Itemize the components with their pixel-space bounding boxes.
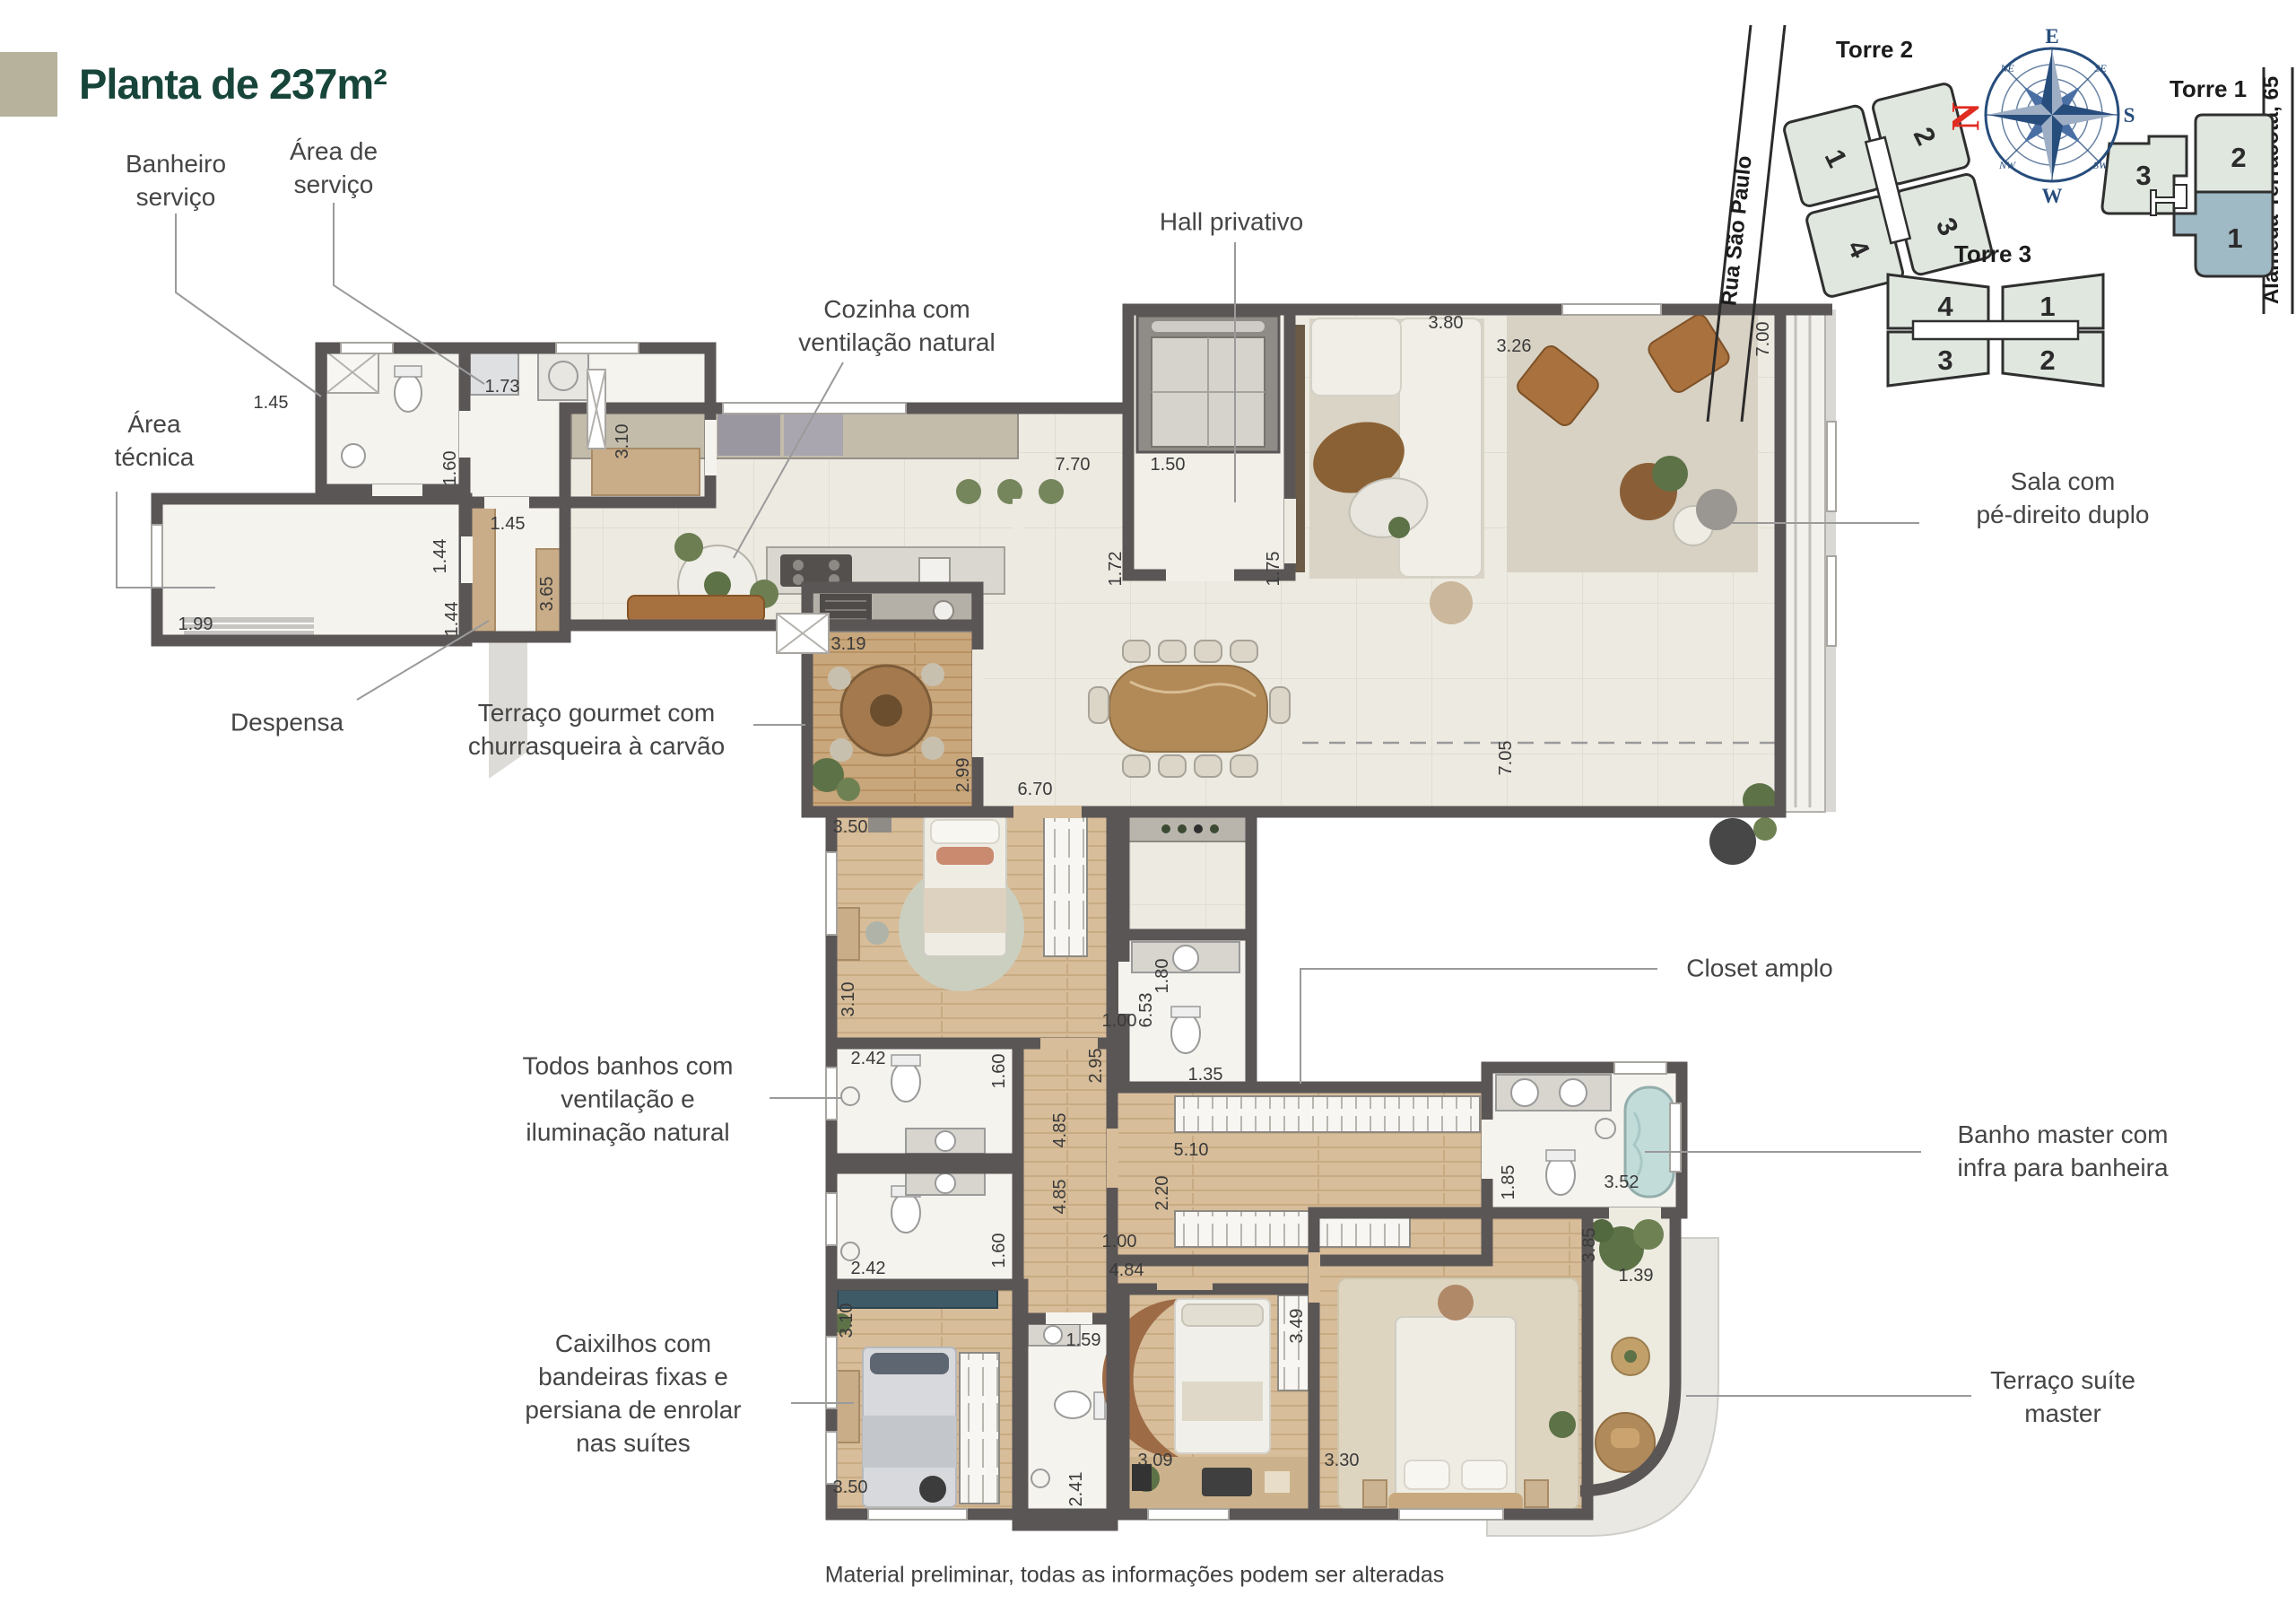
callout-banheiro-servico: Banheiro serviço [86, 148, 265, 214]
dim-label: 3.09 [1138, 1451, 1173, 1470]
sink-icon [935, 1173, 955, 1193]
dim-label: 3.26 [1497, 336, 1532, 356]
callout-area-servico: Área de serviço [253, 135, 414, 202]
dim-label: 2.95 [1086, 1049, 1106, 1084]
callout-caixilhos: Caixilhos com bandeiras fixas e persiana… [485, 1328, 781, 1460]
compass-sw: SW [2093, 159, 2109, 171]
pillow [1405, 1460, 1449, 1489]
dim-label: 1.60 [989, 1054, 1009, 1089]
dim-label: 3.85 [1579, 1228, 1599, 1263]
dim-label: 2.99 [953, 758, 973, 793]
floor-plan: 1.45 1.73 1.60 1.45 1.44 1.44 1.99 3.65 … [117, 203, 1971, 1536]
nightstand [1363, 1480, 1387, 1507]
sink-icon [1044, 1326, 1062, 1344]
sink-icon [1560, 1079, 1587, 1106]
washer-icon [538, 352, 588, 400]
torre1-footprint: 2 3 1 [2102, 115, 2273, 276]
master-bedroom-furniture [1338, 1278, 1578, 1512]
dim-label: 3.65 [537, 577, 557, 612]
callout-banho-master: Banho master com infra para banheira [1883, 1119, 2242, 1185]
nightstand [1525, 1480, 1548, 1507]
fridge-icon [784, 412, 843, 456]
torre3-label: Torre 3 [1954, 240, 2031, 267]
dim-label: 4.85 [1050, 1113, 1070, 1148]
plant-icon [1753, 817, 1777, 841]
nightstand [868, 816, 891, 833]
torre1-unit: 3 [2135, 160, 2151, 191]
compass-e: E [2045, 25, 2058, 48]
dim-label: 2.42 [851, 1049, 886, 1068]
compass-n: N [1944, 102, 1987, 131]
dim-label: 1.39 [1619, 1266, 1654, 1286]
plant-icon [837, 778, 860, 801]
plant-icon [1549, 1411, 1576, 1438]
toilet-icon [891, 1193, 920, 1233]
dim-label: 4.84 [1109, 1260, 1144, 1280]
callout-hall-privativo: Hall privativo [1106, 206, 1357, 240]
callout-closet: Closet amplo [1634, 953, 1885, 986]
callout-despensa: Despensa [188, 707, 386, 740]
toilet-icon [1055, 1391, 1091, 1418]
dim-label: 1.60 [989, 1234, 1009, 1268]
toilet-icon [395, 374, 422, 412]
callout-terraco-master: Terraço suíte master [1928, 1364, 2197, 1431]
callout-sala: Sala com pé-direito duplo [1910, 466, 2215, 532]
dim-label: 5.10 [1174, 1140, 1209, 1160]
dim-label: 2.20 [1152, 1176, 1172, 1211]
plant-icon [1652, 456, 1688, 492]
dim-label: 1.44 [430, 539, 450, 574]
dim-label: 3.50 [833, 817, 868, 837]
dim-label: 2.42 [851, 1259, 886, 1278]
dim-label: 1.72 [1106, 552, 1126, 587]
hall-elevator [1137, 316, 1279, 452]
pillow [1182, 1304, 1263, 1326]
plant-icon [1388, 517, 1410, 538]
torre1-unit: 2 [2231, 142, 2246, 173]
callout-terraco-gourmet: Terraço gourmet com churrasqueira à carv… [426, 697, 767, 763]
dim-label: 1.99 [178, 615, 213, 634]
wardrobe [1044, 816, 1087, 956]
oven-icon [717, 412, 780, 456]
dim-label: 1.45 [254, 393, 289, 413]
dim-label: 7.00 [1753, 322, 1773, 357]
torre3-unit: 3 [1937, 344, 1952, 376]
chair [865, 921, 889, 945]
dim-label: 3.80 [1429, 313, 1464, 333]
wardrobe [960, 1353, 999, 1504]
sofa-chaise [1311, 318, 1401, 396]
sink-icon [1511, 1079, 1538, 1106]
plant-icon [1633, 1219, 1664, 1250]
dim-label: 1.85 [1499, 1165, 1518, 1200]
dim-label: 7.70 [1056, 455, 1091, 475]
banquette-sofa [628, 596, 764, 623]
callout-banhos: Todos banhos com ventilação e iluminação… [484, 1050, 771, 1150]
dim-label: 3.10 [613, 424, 632, 459]
torre2-label: Torre 2 [1836, 36, 1913, 63]
dim-label: 3.52 [1605, 1172, 1639, 1192]
dim-label: 3.10 [839, 982, 858, 1017]
stool [1039, 479, 1064, 504]
kitchen-sink-icon [919, 558, 950, 583]
dim-label: 1.80 [1152, 959, 1172, 994]
compass-ne: NE [1999, 62, 2014, 74]
sofa [1399, 318, 1482, 577]
disclaimer: Material preliminar, todas as informaçõe… [825, 1563, 1445, 1589]
street-label-rua: Rua São Paulo [1717, 154, 1756, 307]
desk [836, 1371, 859, 1443]
sink-icon [342, 444, 365, 467]
torre1-unit: 1 [2227, 222, 2242, 254]
dim-label: 1.35 [1188, 1065, 1223, 1085]
torre1-label: Torre 1 [2170, 75, 2247, 102]
callout-cozinha: Cozinha com ventilação natural [753, 293, 1040, 360]
dim-label: 6.70 [1018, 780, 1053, 799]
dim-label: 1.50 [1151, 455, 1186, 475]
torre3-unit: 2 [2039, 344, 2055, 376]
torre3-footprint: 4 1 3 2 [1888, 275, 2103, 386]
stool [956, 479, 981, 504]
torre1-unit1-shape-highlighted [2174, 192, 2273, 276]
dim-label: 1.59 [1066, 1330, 1101, 1350]
notepad [1265, 1471, 1290, 1493]
leader-banheiro-servico [176, 214, 321, 397]
dim-label: 2.41 [1066, 1472, 1086, 1507]
laptop-icon [1202, 1468, 1252, 1496]
toilet-icon [1171, 1014, 1200, 1053]
pillow [1462, 1460, 1507, 1489]
dim-label: 1.45 [491, 514, 526, 534]
torre3-unit: 4 [1937, 291, 1953, 322]
dim-label: 4.85 [1050, 1180, 1070, 1215]
dim-label: 3.30 [1325, 1451, 1360, 1470]
compass-s: S [2124, 104, 2135, 126]
elevator-door [1152, 321, 1265, 332]
dim-label: 1.60 [440, 451, 460, 486]
cabinet [592, 449, 700, 495]
dim-label: 1.75 [1264, 552, 1283, 587]
plan-canvas: 1.45 1.73 1.60 1.45 1.44 1.44 1.99 3.65 … [0, 0, 2296, 1604]
speaker [919, 1476, 946, 1503]
callout-area-tecnica: Área técnica [78, 408, 230, 475]
tv-console [1295, 325, 1305, 572]
sink-icon [1173, 946, 1198, 971]
dining-table [1109, 666, 1267, 752]
compass-nw: NW [1998, 159, 2016, 171]
pillow [870, 1353, 949, 1374]
sala-window-band [1780, 309, 1825, 812]
bar-shelf [1128, 816, 1247, 841]
cushion [936, 847, 994, 865]
speaker [1709, 818, 1756, 865]
dim-label: 1.44 [442, 602, 462, 637]
dim-label: 3.50 [833, 1478, 868, 1497]
sink-icon [934, 601, 953, 621]
pouf [1430, 581, 1473, 624]
floorplan-page: Planta de 237m² [0, 0, 2296, 1604]
wardrobe [1175, 1096, 1480, 1132]
desk [836, 908, 859, 960]
dim-label: 1.73 [485, 377, 520, 397]
dim-label: 1.00 [1102, 1232, 1137, 1251]
dim-label: 3.10 [837, 1303, 857, 1338]
pouf [1696, 489, 1737, 530]
dim-label: 1.00 [1102, 1011, 1137, 1031]
cushion [1611, 1428, 1639, 1448]
stool [1438, 1285, 1474, 1321]
compass-w: W [2042, 185, 2063, 207]
compass-se: SE [2094, 62, 2107, 74]
cafe-chair [674, 533, 703, 562]
torre3-unit: 1 [2039, 291, 2055, 322]
dim-label: 6.53 [1136, 993, 1156, 1028]
toilet-icon [891, 1062, 920, 1102]
dim-label: 3.19 [831, 634, 866, 654]
dim-label: 3.49 [1287, 1309, 1307, 1344]
pillow [931, 820, 999, 843]
sink-icon [935, 1131, 955, 1151]
teal-shelf [838, 1290, 997, 1308]
dim-label: 7.05 [1496, 741, 1516, 776]
